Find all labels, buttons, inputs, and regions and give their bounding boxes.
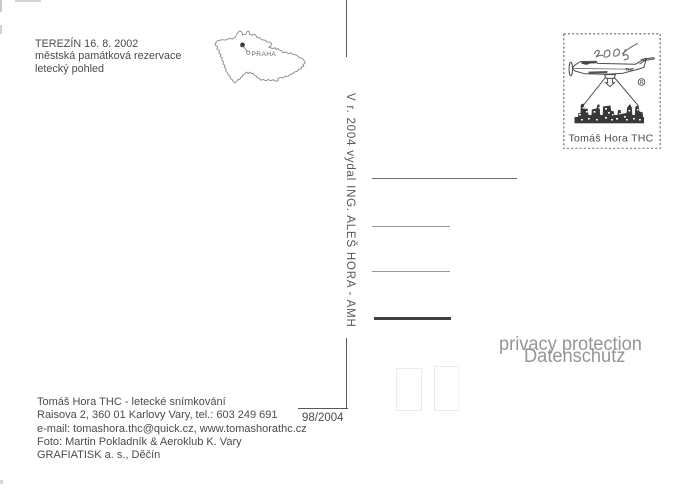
svg-text:PRAHA: PRAHA [252, 51, 277, 58]
svg-text:Tomáš Hora THC: Tomáš Hora THC [568, 132, 653, 144]
svg-text:THC: THC [626, 67, 635, 72]
svg-text:R: R [640, 80, 644, 86]
